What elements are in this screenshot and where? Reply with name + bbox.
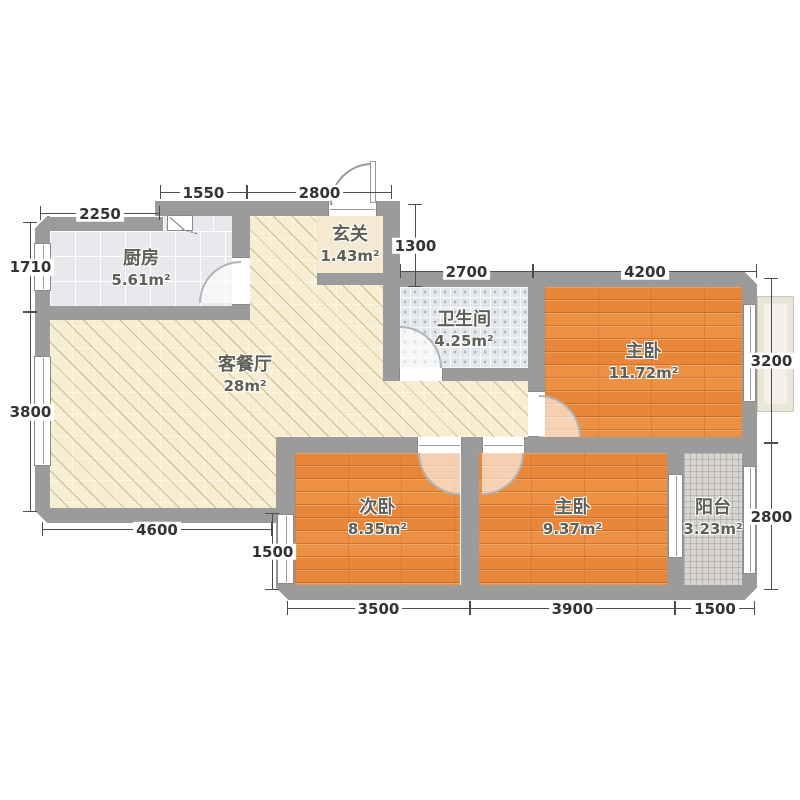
dimension-right-2800: 2800 bbox=[771, 443, 772, 590]
dimension-top-2250: 2250 bbox=[40, 213, 160, 214]
dimension-bottom-3900: 3900 bbox=[470, 608, 675, 609]
floor-plan: 厨房 5.61m² 客餐厅 28m² 玄关 1.43m² 卫生间 4.25m² … bbox=[0, 0, 800, 800]
dim-label: 4200 bbox=[621, 263, 669, 280]
dimension-second-1500: 1500 bbox=[272, 513, 273, 590]
wall-entry-bottom bbox=[317, 273, 400, 285]
dim-label: 2800 bbox=[296, 184, 344, 201]
dim-label: 1710 bbox=[7, 259, 55, 276]
dim-label: 3900 bbox=[549, 600, 597, 617]
dim-label: 3500 bbox=[355, 600, 403, 617]
dimension-top-2800: 2800 bbox=[247, 192, 392, 193]
dimension-top-1550: 1550 bbox=[160, 192, 247, 193]
bathroom-door-opening bbox=[399, 368, 443, 381]
dimension-entry-1300: 1300 bbox=[415, 204, 416, 287]
dim-label: 2250 bbox=[76, 205, 124, 222]
dim-label: 3800 bbox=[7, 404, 55, 421]
dimension-master-4200: 4200 bbox=[533, 271, 757, 272]
wall-bottom bbox=[276, 585, 757, 600]
dim-label: 1500 bbox=[249, 543, 297, 560]
balcony-door-window bbox=[668, 474, 683, 558]
dimension-bottom-4600: 4600 bbox=[42, 529, 272, 530]
dim-label: 4600 bbox=[133, 521, 181, 538]
second-door-opening bbox=[417, 437, 462, 453]
dimension-bottom-3500: 3500 bbox=[287, 608, 470, 609]
dimension-right-3200: 3200 bbox=[771, 278, 772, 443]
dim-label: 1500 bbox=[691, 600, 739, 617]
balcony-floor bbox=[684, 453, 742, 585]
dimension-left-1710: 1710 bbox=[30, 222, 31, 312]
dim-label: 2800 bbox=[748, 508, 796, 525]
dim-label: 1550 bbox=[180, 184, 228, 201]
dim-label: 2700 bbox=[443, 263, 491, 280]
entry-floor bbox=[317, 216, 383, 273]
entry-door-leaf bbox=[370, 161, 376, 203]
master-bottom-door-opening bbox=[482, 437, 525, 453]
dimension-bath-2700: 2700 bbox=[400, 271, 533, 272]
wall-kitchen-bottom bbox=[35, 306, 250, 320]
corner-bevel bbox=[35, 511, 47, 523]
dimension-bottom-1500: 1500 bbox=[675, 608, 755, 609]
dimension-left-3800: 3800 bbox=[30, 312, 31, 512]
corner-bevel bbox=[745, 588, 757, 600]
dim-label: 1300 bbox=[392, 237, 440, 254]
dim-label: 3200 bbox=[748, 352, 796, 369]
wall-bedroom-divider bbox=[461, 453, 479, 585]
